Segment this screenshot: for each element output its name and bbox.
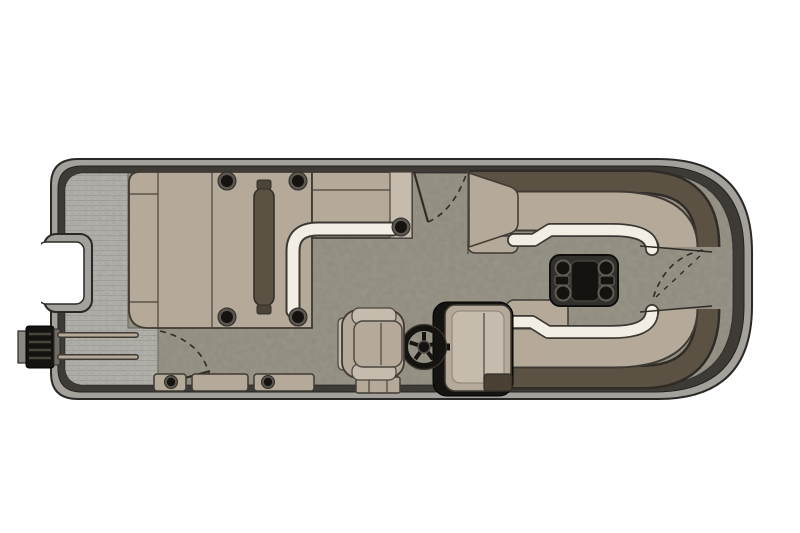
cup-holder xyxy=(289,172,307,190)
console-top-panel xyxy=(452,311,504,383)
cup-holder xyxy=(218,308,236,326)
floorplan-canvas xyxy=(0,0,800,533)
console-mat xyxy=(484,374,512,391)
cup-holder xyxy=(392,218,410,236)
rear-sun-lounger xyxy=(129,172,312,328)
ladder-body xyxy=(26,326,54,368)
plate-latch xyxy=(555,276,569,285)
cup-holder xyxy=(599,261,614,276)
table-mount-plate xyxy=(550,255,618,306)
stern-notch xyxy=(16,234,92,312)
cup-holder xyxy=(556,261,571,276)
cup-holder xyxy=(165,376,178,389)
backrest-tab xyxy=(257,305,271,314)
plate-latch xyxy=(600,276,614,285)
table-base-socket xyxy=(571,261,599,301)
kick-panels xyxy=(154,374,314,391)
chair-cushion xyxy=(354,321,402,367)
backrest-tab xyxy=(257,180,271,189)
backrest-divider xyxy=(254,188,274,306)
cup-holder xyxy=(599,286,614,301)
cup-holder xyxy=(262,376,275,389)
cup-holder xyxy=(556,286,571,301)
pontoon-floorplan xyxy=(0,0,800,533)
cup-holder xyxy=(218,172,236,190)
cup-holder xyxy=(289,308,307,326)
